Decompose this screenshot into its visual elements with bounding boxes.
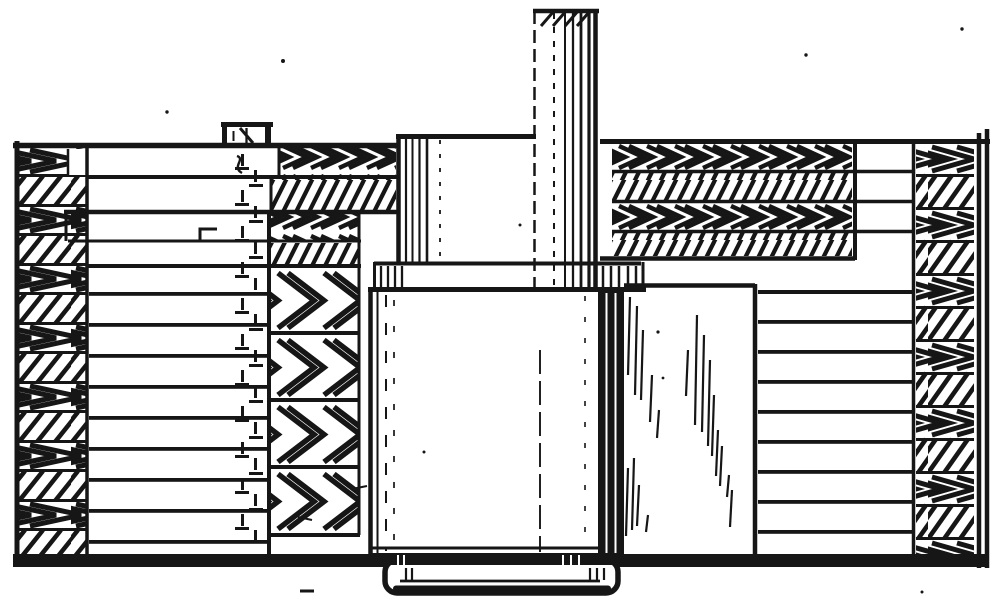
hidden-bolt — [233, 152, 265, 542]
inner-clamp-column — [268, 212, 360, 557]
drawing-page — [0, 0, 1002, 600]
cross-section-drawing — [0, 0, 1002, 600]
left-clamp-column — [15, 141, 87, 558]
cylinder-foot — [369, 553, 619, 593]
cylinder-block-divider — [598, 289, 624, 557]
right-clamp-column — [916, 141, 974, 558]
